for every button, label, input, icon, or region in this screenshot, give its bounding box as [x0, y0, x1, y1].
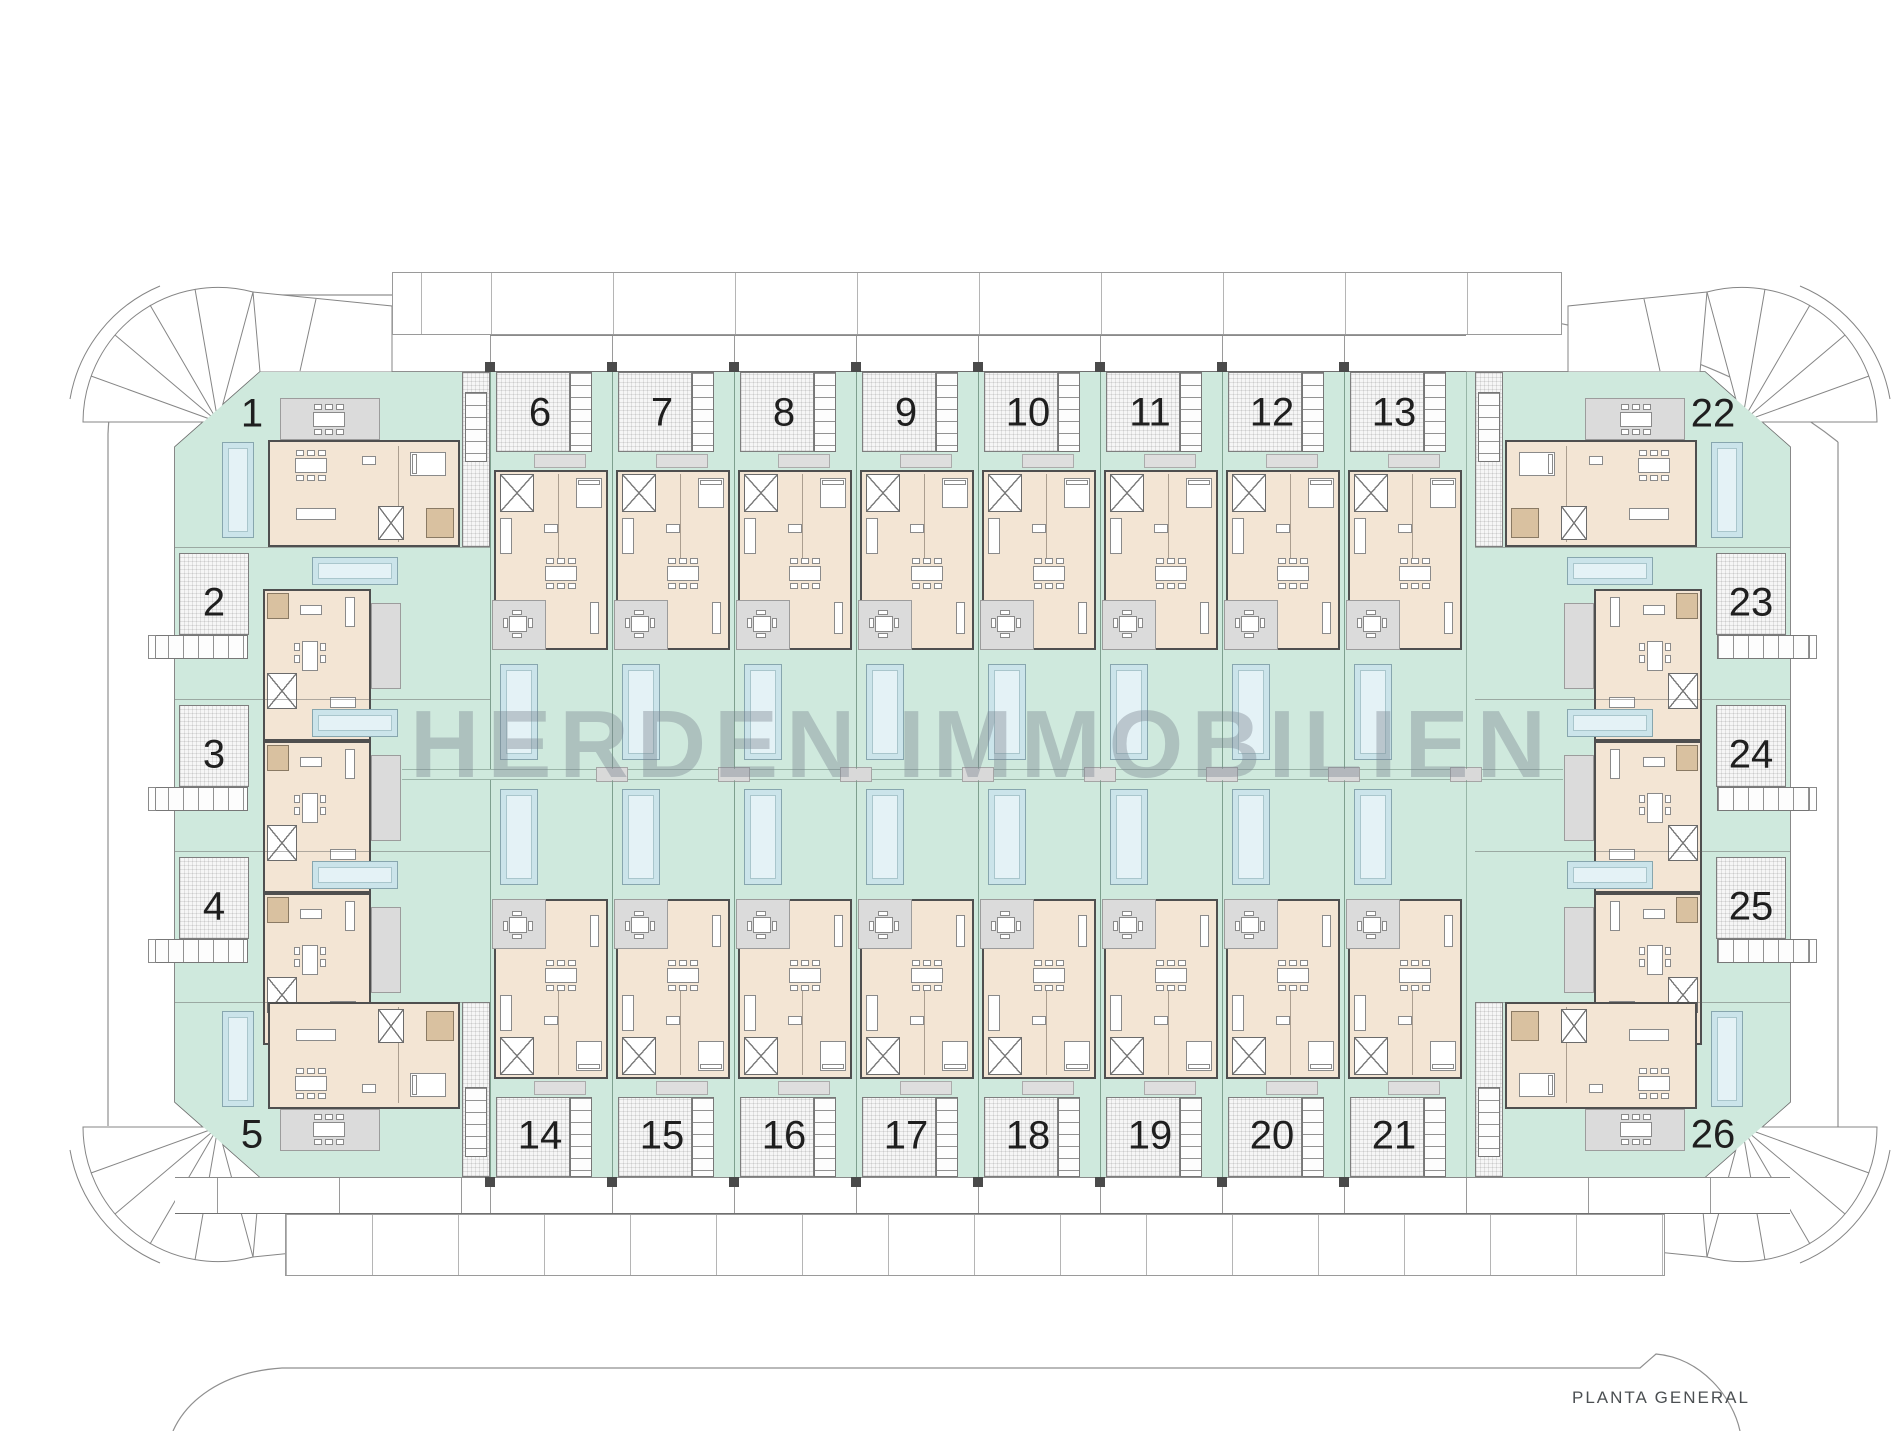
dining-table	[911, 566, 943, 581]
stairs	[152, 635, 248, 659]
gate-post	[851, 362, 861, 372]
chair	[756, 610, 766, 615]
chair	[307, 475, 315, 481]
chair	[1000, 633, 1010, 638]
entry-pad	[900, 454, 952, 468]
kitchen-counter	[1610, 597, 1620, 627]
chair	[1045, 985, 1053, 991]
chair	[1278, 985, 1286, 991]
chair	[1665, 959, 1671, 967]
chair	[1244, 633, 1254, 638]
dining-table	[1241, 917, 1259, 933]
chair	[1156, 558, 1164, 564]
dining-table	[545, 566, 577, 581]
unit-number-label: 10	[1006, 391, 1051, 436]
chair	[790, 558, 798, 564]
tv-unit	[956, 915, 965, 947]
bath	[1511, 1011, 1539, 1041]
dining-table	[911, 968, 943, 983]
pillow	[412, 1075, 417, 1095]
pillow	[1188, 1064, 1210, 1069]
chair	[1382, 618, 1387, 628]
chair	[336, 429, 344, 435]
chair	[1244, 610, 1254, 615]
swimming-pool	[500, 789, 538, 885]
chair	[1643, 1139, 1651, 1145]
chair	[1357, 921, 1362, 931]
gate-post	[1217, 1177, 1227, 1187]
kitchen-island	[1398, 524, 1412, 533]
chair	[690, 960, 698, 966]
unit-number-label: 26	[1691, 1113, 1736, 1158]
swimming-pool	[1354, 789, 1392, 885]
unit-number-label: 5	[241, 1113, 263, 1158]
chair	[320, 807, 326, 815]
kitchen-island	[1154, 1016, 1168, 1025]
chair	[320, 795, 326, 803]
unit-number-label: 8	[773, 391, 795, 436]
chair	[314, 429, 322, 435]
chair	[1300, 985, 1308, 991]
entry-pad	[1144, 454, 1196, 468]
chair	[1665, 807, 1671, 815]
chair	[668, 985, 676, 991]
pillow	[822, 1064, 844, 1069]
chair	[568, 558, 576, 564]
lot-line	[856, 780, 857, 1177]
stair-core	[622, 474, 656, 512]
chair	[1289, 960, 1297, 966]
chair	[1639, 475, 1647, 481]
chair	[1661, 475, 1669, 481]
room-wall	[1412, 474, 1413, 558]
chair	[1278, 558, 1286, 564]
unit-number-label: 18	[1006, 1114, 1051, 1159]
room-wall	[680, 991, 681, 1075]
pillow	[822, 480, 844, 485]
stair-core	[1232, 474, 1266, 512]
room-wall	[802, 991, 803, 1075]
chair	[1167, 558, 1175, 564]
pool-water	[228, 1017, 248, 1101]
chair	[568, 583, 576, 589]
chair	[1422, 985, 1430, 991]
pool-water	[1238, 795, 1264, 879]
pool-water	[506, 795, 532, 879]
room-wall	[1168, 991, 1169, 1075]
stairs	[1424, 372, 1446, 452]
chair	[1621, 1139, 1629, 1145]
chair	[1366, 610, 1376, 615]
chair	[1138, 618, 1143, 628]
chair	[1357, 618, 1362, 628]
pillow	[1188, 480, 1210, 485]
apron-bottom	[285, 1214, 1665, 1276]
pool-water	[318, 563, 392, 579]
room-wall	[1168, 474, 1169, 558]
chair	[557, 558, 565, 564]
chair	[1178, 558, 1186, 564]
swimming-pool	[988, 789, 1026, 885]
chair	[1056, 583, 1064, 589]
chair	[894, 921, 899, 931]
chair	[296, 1093, 304, 1099]
room-wall	[1046, 991, 1047, 1075]
gate-post	[1095, 1177, 1105, 1187]
chair	[801, 558, 809, 564]
chair	[1300, 960, 1308, 966]
swimming-pool	[222, 1011, 254, 1107]
chair	[1156, 583, 1164, 589]
dining-table	[1363, 917, 1381, 933]
chair	[294, 807, 300, 815]
chair	[1665, 655, 1671, 663]
chair	[991, 618, 996, 628]
swimming-pool	[1110, 789, 1148, 885]
pillow	[1548, 1075, 1553, 1095]
chair	[1422, 583, 1430, 589]
kitchen-counter	[744, 995, 756, 1031]
tv-unit	[712, 602, 721, 634]
chair	[1632, 1114, 1640, 1120]
dining-table	[1277, 968, 1309, 983]
pillow	[944, 480, 966, 485]
stairs	[1717, 787, 1813, 811]
chair	[1639, 959, 1645, 967]
chair	[1639, 450, 1647, 456]
unit-number-label: 13	[1372, 391, 1417, 436]
kitchen-island	[362, 1084, 376, 1093]
unit-number-label: 15	[640, 1114, 685, 1159]
chair	[912, 960, 920, 966]
pillow	[412, 454, 417, 474]
room-wall	[1046, 474, 1047, 558]
tv-unit	[834, 602, 843, 634]
unit-number-label: 4	[203, 885, 225, 930]
chair	[1300, 583, 1308, 589]
dining-table	[1155, 968, 1187, 983]
lot-line	[1222, 780, 1223, 1177]
bath	[1676, 897, 1698, 923]
chair	[1639, 643, 1645, 651]
gate-post	[729, 1177, 739, 1187]
bath	[267, 897, 289, 923]
chair	[1045, 583, 1053, 589]
chair	[1000, 610, 1010, 615]
kitchen-counter	[1610, 901, 1620, 931]
pillow	[1310, 1064, 1332, 1069]
chair	[1235, 921, 1240, 931]
chair	[318, 1093, 326, 1099]
pillow	[1432, 1064, 1454, 1069]
chair	[878, 911, 888, 916]
kitchen-counter	[1110, 995, 1122, 1031]
pool-water	[1116, 795, 1142, 879]
chair	[634, 934, 644, 939]
kitchen-island	[788, 524, 802, 533]
stair-core	[378, 506, 404, 540]
chair	[294, 643, 300, 651]
chair	[772, 618, 777, 628]
chair	[1665, 643, 1671, 651]
stairs	[465, 392, 487, 462]
chair	[1178, 960, 1186, 966]
chair	[512, 610, 522, 615]
stairs	[814, 372, 836, 452]
pool-water	[1360, 795, 1386, 879]
chair	[812, 558, 820, 564]
chair	[1366, 934, 1376, 939]
stair-core	[1561, 506, 1587, 540]
stairs	[1717, 939, 1813, 963]
kitchen-island	[300, 757, 322, 767]
kitchen-island	[544, 1016, 558, 1025]
pillow	[944, 1064, 966, 1069]
room-wall	[1290, 991, 1291, 1075]
swimming-pool	[312, 557, 398, 585]
pillow	[1066, 1064, 1088, 1069]
chair	[1113, 921, 1118, 931]
dining-table	[631, 917, 649, 933]
chair	[679, 558, 687, 564]
dining-table	[789, 566, 821, 581]
chair	[1122, 633, 1132, 638]
kitchen-counter	[1110, 518, 1122, 554]
chair	[296, 450, 304, 456]
dining-table	[302, 945, 318, 975]
pool-water	[994, 795, 1020, 879]
chair	[1034, 583, 1042, 589]
entry-pad	[1388, 454, 1440, 468]
chair	[1382, 921, 1387, 931]
dining-table	[667, 968, 699, 983]
chair	[690, 583, 698, 589]
stairs	[1058, 1097, 1080, 1177]
swimming-pool	[866, 789, 904, 885]
chair	[869, 921, 874, 931]
chair	[912, 583, 920, 589]
unit-number-label: 22	[1691, 392, 1736, 437]
chair	[1045, 558, 1053, 564]
chair	[325, 1114, 333, 1120]
tv-unit	[956, 602, 965, 634]
chair	[790, 583, 798, 589]
chair	[679, 985, 687, 991]
stair-core	[744, 474, 778, 512]
chair	[668, 583, 676, 589]
chair	[503, 921, 508, 931]
row-line	[1475, 851, 1790, 852]
chair	[1400, 960, 1408, 966]
stairs	[1478, 1087, 1500, 1157]
entry-pad	[1022, 454, 1074, 468]
dining-table	[875, 616, 893, 632]
chair	[991, 921, 996, 931]
chair	[1639, 947, 1645, 955]
room-wall	[1290, 474, 1291, 558]
chair	[1016, 618, 1021, 628]
gate-post	[1217, 362, 1227, 372]
dining-table	[509, 616, 527, 632]
chair	[1632, 1139, 1640, 1145]
stair-core	[1561, 1009, 1587, 1043]
kitchen-counter	[1232, 518, 1244, 554]
chair	[772, 921, 777, 931]
gate-post	[973, 1177, 983, 1187]
chair	[1366, 633, 1376, 638]
chair	[512, 911, 522, 916]
chair	[690, 985, 698, 991]
unit-number-label: 20	[1250, 1114, 1295, 1159]
unit-number-label: 3	[203, 733, 225, 778]
chair	[1235, 618, 1240, 628]
porch-step	[148, 787, 156, 811]
terrace-patio	[371, 907, 401, 993]
chair	[912, 558, 920, 564]
tv-unit	[1322, 915, 1331, 947]
chair	[934, 558, 942, 564]
sofa	[296, 1029, 336, 1041]
chair	[314, 404, 322, 410]
dining-table	[997, 616, 1015, 632]
tv-unit	[590, 602, 599, 634]
stair-core	[866, 474, 900, 512]
unit-number-label: 21	[1372, 1114, 1417, 1159]
chair	[546, 985, 554, 991]
stairs	[936, 372, 958, 452]
gate-post	[607, 362, 617, 372]
terrace-patio	[371, 603, 401, 689]
stairs	[570, 1097, 592, 1177]
dining-table	[631, 616, 649, 632]
dining-table	[1399, 968, 1431, 983]
unit-number-label: 1	[241, 392, 263, 437]
pool-water	[1573, 867, 1647, 883]
entry-pad	[1144, 1081, 1196, 1095]
chair	[1167, 583, 1175, 589]
chair	[812, 960, 820, 966]
kitchen-island	[788, 1016, 802, 1025]
chair	[1661, 1068, 1669, 1074]
dining-table	[1277, 566, 1309, 581]
chair	[546, 583, 554, 589]
stair-core	[500, 474, 534, 512]
pillow	[700, 1064, 722, 1069]
chair	[1167, 960, 1175, 966]
chair	[294, 947, 300, 955]
chair	[1289, 583, 1297, 589]
chair	[869, 618, 874, 628]
chair	[294, 959, 300, 967]
chair	[557, 985, 565, 991]
terrace-patio	[1564, 907, 1594, 993]
row-line	[175, 851, 490, 852]
kitchen-island	[1154, 524, 1168, 533]
chair	[1621, 404, 1629, 410]
kitchen-island	[910, 1016, 924, 1025]
stairs	[1180, 1097, 1202, 1177]
dining-table	[302, 641, 318, 671]
chair	[878, 633, 888, 638]
kitchen-counter	[1354, 995, 1366, 1031]
dining-table	[302, 793, 318, 823]
chair	[1178, 985, 1186, 991]
chair	[557, 583, 565, 589]
chair	[1016, 921, 1021, 931]
chair	[307, 450, 315, 456]
stairs	[1424, 1097, 1446, 1177]
chair	[1260, 618, 1265, 628]
chair	[1289, 558, 1297, 564]
chair	[318, 450, 326, 456]
stairs	[570, 372, 592, 452]
dining-table	[1647, 641, 1663, 671]
tv-unit	[712, 915, 721, 947]
chair	[1056, 558, 1064, 564]
stair-core	[622, 1037, 656, 1075]
gate-post	[485, 1177, 495, 1187]
chair	[923, 558, 931, 564]
porch-step	[1809, 787, 1817, 811]
chair	[747, 921, 752, 931]
chair	[790, 960, 798, 966]
chair	[325, 1139, 333, 1145]
chair	[1034, 558, 1042, 564]
pillow	[1310, 480, 1332, 485]
dining-table	[1033, 968, 1065, 983]
kitchen-counter	[500, 995, 512, 1031]
chair	[1650, 1068, 1658, 1074]
stair-core	[500, 1037, 534, 1075]
chair	[296, 1068, 304, 1074]
chair	[668, 558, 676, 564]
chair	[1366, 911, 1376, 916]
chair	[1632, 429, 1640, 435]
row-line	[1475, 547, 1790, 548]
kitchen-counter	[345, 597, 355, 627]
room-wall	[924, 991, 925, 1075]
chair	[1122, 934, 1132, 939]
chair	[546, 558, 554, 564]
chair	[336, 404, 344, 410]
dining-table	[1620, 412, 1652, 427]
stairs	[1302, 1097, 1324, 1177]
lot-line	[490, 780, 491, 1177]
kitchen-island	[666, 524, 680, 533]
swimming-pool	[744, 789, 782, 885]
chair	[528, 618, 533, 628]
chair	[1122, 610, 1132, 615]
tv-unit	[1444, 602, 1453, 634]
stair-core	[267, 825, 297, 861]
tv-unit	[834, 915, 843, 947]
chair	[568, 960, 576, 966]
unit-number-label: 25	[1729, 885, 1774, 930]
unit-number-label: 6	[529, 391, 551, 436]
chair	[690, 558, 698, 564]
porch-step	[148, 635, 156, 659]
stair-core	[1354, 474, 1388, 512]
chair	[668, 960, 676, 966]
stair-core	[1110, 474, 1144, 512]
gate-post	[973, 362, 983, 372]
dining-table	[1638, 458, 1670, 473]
kitchen-island	[1589, 1084, 1603, 1093]
gate-post	[729, 362, 739, 372]
gate-post	[851, 1177, 861, 1187]
chair	[625, 618, 630, 628]
sofa	[1629, 508, 1669, 520]
